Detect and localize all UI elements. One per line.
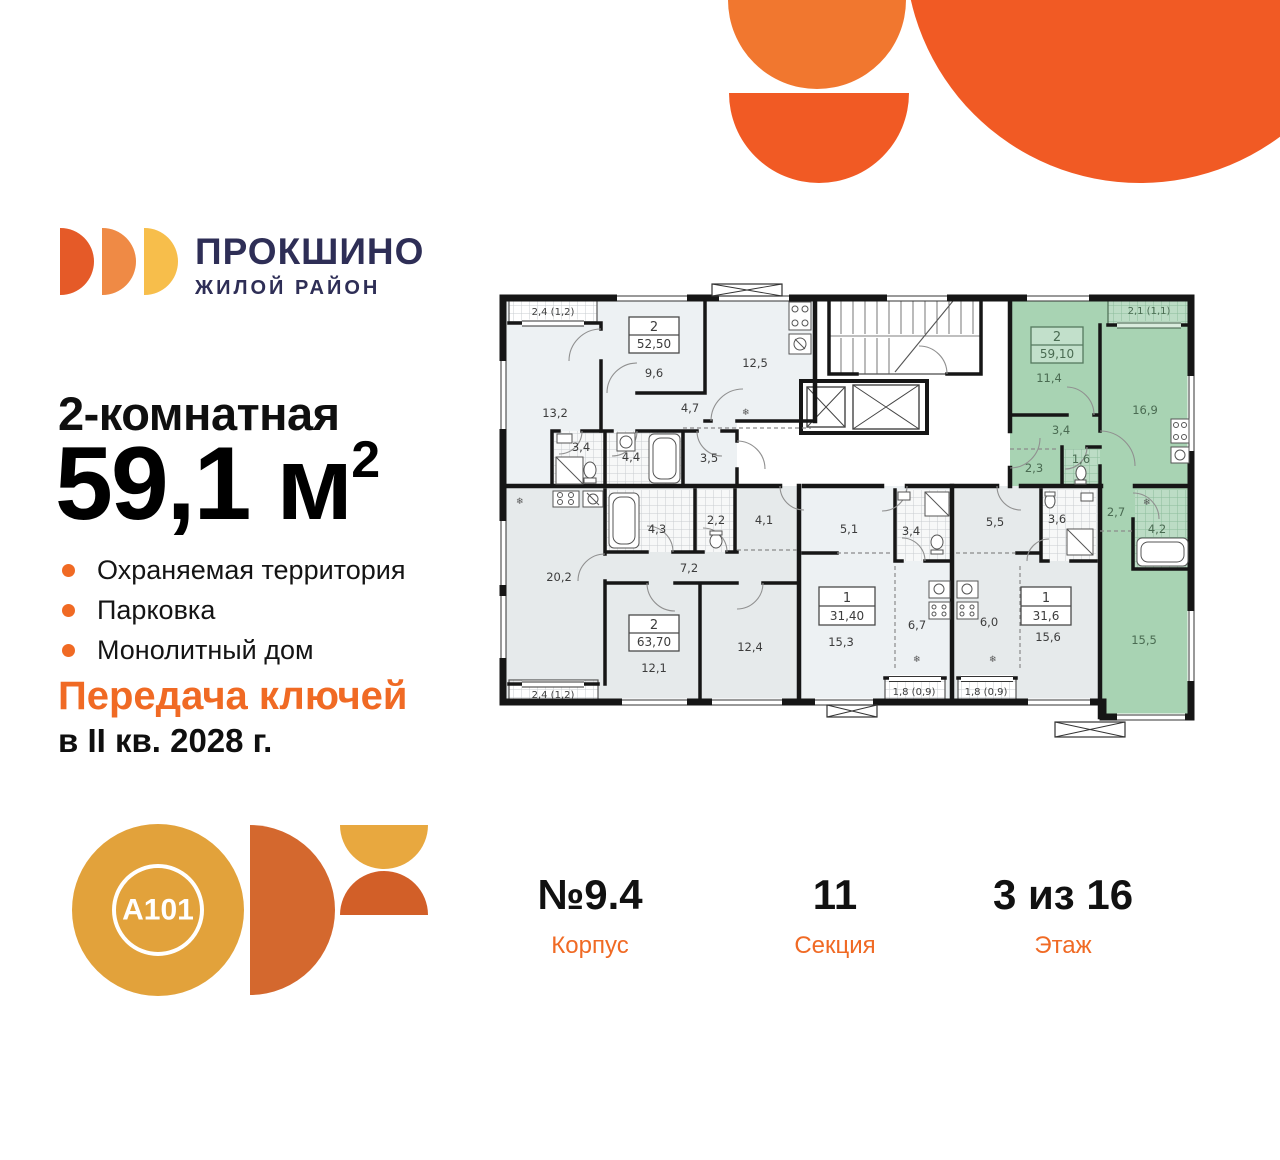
a101-small-yellow-icon xyxy=(340,825,428,869)
section-label: Секция xyxy=(735,932,935,960)
room-area-label: 12,5 xyxy=(742,356,768,370)
room-area-label: 15,3 xyxy=(828,635,854,649)
apartment-rooms-count: 2 xyxy=(650,618,658,633)
sink-icon xyxy=(957,581,978,598)
room-area-label: 2,3 xyxy=(1025,461,1043,475)
room-area-label: 2,1 (1,1) xyxy=(1128,306,1171,317)
brand-logo: ПРОКШИНО ЖИЛОЙ РАЙОН xyxy=(60,228,424,300)
stove-icon xyxy=(957,602,978,619)
room-area-label: 15,5 xyxy=(1131,633,1157,647)
room-area-label: 4,4 xyxy=(622,450,640,464)
shower-icon xyxy=(925,492,949,516)
apartment-box-59-highlighted: 2 59,10 xyxy=(1031,327,1083,363)
toilet-icon xyxy=(710,531,722,548)
basin-icon xyxy=(1081,493,1093,501)
room-area-label: 1,6 xyxy=(1072,452,1090,466)
feature-label: Парковка xyxy=(97,595,215,626)
area-value: 59,1 м xyxy=(55,426,351,542)
floor-value: 3 из 16 xyxy=(963,872,1163,918)
room-area-label: 3,5 xyxy=(700,451,718,465)
apartment-rooms-count: 1 xyxy=(1042,591,1050,606)
stove-icon xyxy=(929,602,950,619)
room-area-label: 3,4 xyxy=(1052,423,1070,437)
room-area-label: 3,4 xyxy=(572,440,590,454)
brand-disc-icon xyxy=(60,228,94,295)
sink-icon xyxy=(789,334,811,354)
room-area-label: 4,3 xyxy=(648,522,666,536)
shower-icon xyxy=(1067,529,1093,555)
sink-icon xyxy=(1171,447,1189,463)
hood-icon: ❄ xyxy=(1143,498,1151,508)
fridge-icon: ❄ xyxy=(742,408,750,418)
apartment-box-52: 2 52,50 xyxy=(629,317,679,353)
meta-building: №9.4 Корпус xyxy=(490,872,690,960)
apartment-box-31-40: 1 31,40 xyxy=(819,587,875,625)
feature-item: Охраняемая территория xyxy=(62,550,405,590)
room-area-label: 15,6 xyxy=(1035,630,1061,644)
room-area-label: 4,2 xyxy=(1148,522,1166,536)
staircase xyxy=(829,298,981,374)
feature-label: Охраняемая территория xyxy=(97,555,405,586)
washer-icon xyxy=(617,433,635,451)
apartment-total-area: 31,40 xyxy=(830,609,864,623)
room-area-label: 5,1 xyxy=(840,522,858,536)
room-area-label: 3,4 xyxy=(902,524,920,538)
feature-item: Парковка xyxy=(62,590,405,630)
apartment-box-63: 2 63,70 xyxy=(629,615,679,651)
room-area-label: 4,1 xyxy=(755,513,773,527)
apartment-box-31-6: 1 31,6 xyxy=(1021,587,1071,625)
meta-floor: 3 из 16 Этаж xyxy=(963,872,1163,960)
room-area-label: 2,7 xyxy=(1107,505,1125,519)
building-value: №9.4 xyxy=(490,872,690,918)
developer-logo: A101 xyxy=(70,820,440,1015)
features-list: Охраняемая территория Парковка Монолитны… xyxy=(62,550,405,670)
apartment-total-area: 63,70 xyxy=(637,635,671,649)
brand-name: ПРОКШИНО xyxy=(195,233,424,270)
room-area-label: 6,7 xyxy=(908,618,926,632)
floor-label: Этаж xyxy=(963,932,1163,960)
room-area-label: 16,9 xyxy=(1132,403,1158,417)
apartment-total-area: 59,10 xyxy=(1040,347,1074,361)
toilet-icon xyxy=(1075,466,1086,484)
room-area-label: 12,4 xyxy=(737,640,763,654)
bullet-dot-icon xyxy=(62,644,75,657)
basin-icon xyxy=(557,434,572,443)
hood-icon: ❄ xyxy=(989,655,997,665)
toilet-icon xyxy=(931,535,943,554)
stove-icon xyxy=(1171,419,1189,443)
section-value: 11 xyxy=(735,872,935,918)
area-sup: 2 xyxy=(351,431,380,489)
room-area-label: 1,8 (0,9) xyxy=(965,687,1008,698)
feature-item: Монолитный дом xyxy=(62,630,405,670)
apartment-area-title: 59,1 м2 xyxy=(55,430,380,539)
bathtub-icon xyxy=(649,434,680,483)
stove-icon xyxy=(553,491,579,507)
apartment-total-area: 31,6 xyxy=(1033,609,1060,623)
room-area-label: 12,1 xyxy=(641,661,667,675)
bullet-dot-icon xyxy=(62,564,75,577)
room-area-label: 2,4 (1,2) xyxy=(532,690,575,701)
brand-disc-icon xyxy=(144,228,178,295)
decor-halfdisc-light xyxy=(728,0,906,89)
hood-icon: ❄ xyxy=(516,497,524,507)
basin-icon xyxy=(898,492,910,500)
meta-section: 11 Секция xyxy=(735,872,935,960)
room-area-label: 6,0 xyxy=(980,615,998,629)
toilet-icon xyxy=(584,462,596,483)
room-area-label: 5,5 xyxy=(986,515,1004,529)
room-area-label: 2,4 (1,2) xyxy=(532,307,575,318)
a101-small-orange-icon xyxy=(340,871,428,915)
handover-date: в II кв. 2028 г. xyxy=(58,722,272,760)
building-label: Корпус xyxy=(490,932,690,960)
brand-disc-icon xyxy=(102,228,136,295)
bathtub-icon xyxy=(1137,538,1188,566)
decor-halfdisc-dark xyxy=(729,93,909,183)
brand-logo-discs-icon xyxy=(60,228,178,295)
toilet-icon xyxy=(1045,492,1055,508)
a101-label: A101 xyxy=(122,894,194,927)
room-area-label: 3,6 xyxy=(1048,512,1066,526)
shower-icon xyxy=(556,457,583,484)
brand-subtitle: ЖИЛОЙ РАЙОН xyxy=(195,277,424,300)
room-area-label: 4,7 xyxy=(681,401,699,415)
sink-icon xyxy=(929,581,950,598)
apartment-rooms-count: 2 xyxy=(650,320,658,335)
apartment-rooms-count: 2 xyxy=(1053,330,1061,345)
room-area-label: 20,2 xyxy=(546,570,572,584)
room-area-label: 1,8 (0,9) xyxy=(893,687,936,698)
apartment-total-area: 52,50 xyxy=(637,337,671,351)
sink-icon xyxy=(583,491,603,507)
floor-plan: ❄ ❄ ❄ ❄ ❄ 2 52,50 2 59,10 2 63,70 1 31,4… xyxy=(497,281,1197,751)
stove-icon xyxy=(789,302,811,330)
apartment-rooms-count: 1 xyxy=(843,591,851,606)
decor-shapes xyxy=(710,0,1280,186)
bathtub-icon xyxy=(609,493,639,548)
bullet-dot-icon xyxy=(62,604,75,617)
room-area-label: 11,4 xyxy=(1036,371,1062,385)
room-area-label: 9,6 xyxy=(645,366,663,380)
elevators xyxy=(801,381,927,433)
hood-icon: ❄ xyxy=(913,655,921,665)
handover-title: Передача ключей xyxy=(58,674,408,719)
a101-halfdisc-icon xyxy=(250,825,335,995)
room-area-label: 13,2 xyxy=(542,406,568,420)
decor-big-circle xyxy=(905,0,1280,183)
room-area-label: 2,2 xyxy=(707,513,725,527)
room-area-label: 7,2 xyxy=(680,561,698,575)
feature-label: Монолитный дом xyxy=(97,635,314,666)
